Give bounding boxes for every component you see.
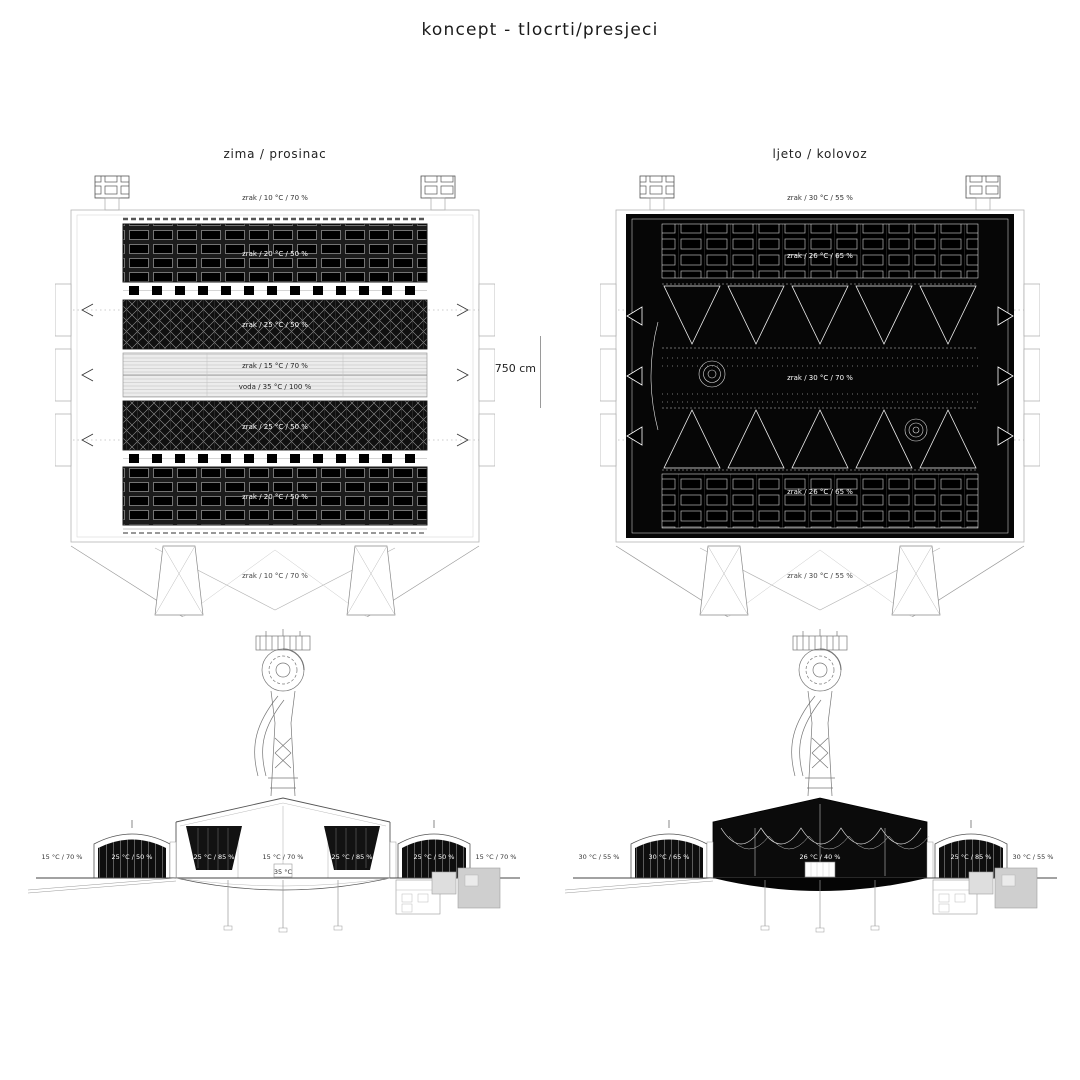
summer-hall	[713, 798, 929, 878]
summer-sec-label-out-right: 30 °C / 55 %	[1013, 853, 1054, 861]
winter-sec-label-pod-right: 25 °C / 50 %	[414, 853, 455, 861]
summer-tower	[792, 629, 847, 796]
winter-section-drawing: 15 °C / 70 % 25 °C / 50 % 25 °C / 85 % 1…	[28, 628, 528, 938]
page-title: koncept - tlocrti/presjeci	[0, 20, 1080, 40]
summer-sec-label-center: 26 °C / 40 %	[800, 853, 841, 861]
summer-label-center: zrak / 30 °C / 70 %	[787, 374, 853, 382]
winter-label-center-water: voda / 35 °C / 100 %	[239, 383, 312, 391]
summer-apron	[616, 546, 1024, 617]
winter-label-hall-bottom: zrak / 20 °C / 50 %	[242, 493, 308, 501]
summer-label-outside-top: zrak / 30 °C / 55 %	[787, 194, 853, 202]
scale-bar	[540, 336, 541, 408]
winter-sec-label-center: 15 °C / 70 %	[263, 853, 304, 861]
winter-label-outside-bottom: zrak / 10 °C / 70 %	[242, 572, 308, 580]
summer-section-drawing: 30 °C / 55 % 30 °C / 65 % 26 °C / 40 % 2…	[565, 628, 1065, 938]
winter-tent-right	[324, 826, 380, 870]
winter-floor-plan: zrak / 10 °C / 70 % zrak / 20 °C / 50 % …	[55, 172, 495, 617]
winter-label-hall-top: zrak / 20 °C / 50 %	[242, 250, 308, 258]
winter-sec-label-tent-left: 25 °C / 85 %	[194, 853, 235, 861]
winter-tent-left	[186, 826, 242, 870]
summer-label-hall-top: zrak / 26 °C / 65 %	[787, 252, 853, 260]
winter-sec-label-tent-right: 25 °C / 85 %	[332, 853, 373, 861]
winter-annex-large	[458, 868, 500, 908]
winter-plan-structure	[55, 176, 495, 617]
summer-sec-label-pod-right: 25 °C / 85 %	[951, 853, 992, 861]
summer-plan-structure	[600, 176, 1040, 617]
summer-label-outside-bottom: zrak / 30 °C / 55 %	[787, 572, 853, 580]
winter-hall	[176, 798, 390, 878]
winter-sec-label-pod-left: 25 °C / 50 %	[112, 853, 153, 861]
winter-label-outside-top: zrak / 10 °C / 70 %	[242, 194, 308, 202]
winter-label-center-air: zrak / 15 °C / 70 %	[242, 362, 308, 370]
winter-apron	[71, 546, 479, 617]
scale-label: 750 cm	[492, 362, 536, 375]
scale-marker: 750 cm	[492, 336, 578, 408]
winter-label-greenhouse-top: zrak / 25 °C / 50 %	[242, 321, 308, 329]
summer-annex-small	[969, 872, 993, 894]
winter-sec-label-out-right: 15 °C / 70 %	[476, 853, 517, 861]
summer-ground	[565, 868, 1057, 932]
winter-ground	[28, 868, 520, 932]
winter-annex-small	[432, 872, 456, 894]
winter-sec-label-out-left: 15 °C / 70 %	[42, 853, 83, 861]
winter-label-greenhouse-bottom: zrak / 25 °C / 50 %	[242, 423, 308, 431]
winter-tower	[255, 629, 310, 796]
summer-annex-large	[995, 868, 1037, 908]
summer-label-hall-bottom: zrak / 26 °C / 65 %	[787, 488, 853, 496]
winter-plan-title: zima / prosinac	[55, 147, 495, 161]
summer-section-labels: 30 °C / 55 % 30 °C / 65 % 26 °C / 40 % 2…	[579, 853, 1054, 861]
summer-plan-title: ljeto / kolovoz	[600, 147, 1040, 161]
winter-sec-label-water: 35 °C	[274, 868, 293, 876]
summer-sec-label-pod-left: 30 °C / 65 %	[649, 853, 690, 861]
summer-floor-plan: zrak / 30 °C / 55 % zrak / 26 °C / 65 % …	[600, 172, 1040, 617]
summer-sec-label-out-left: 30 °C / 55 %	[579, 853, 620, 861]
